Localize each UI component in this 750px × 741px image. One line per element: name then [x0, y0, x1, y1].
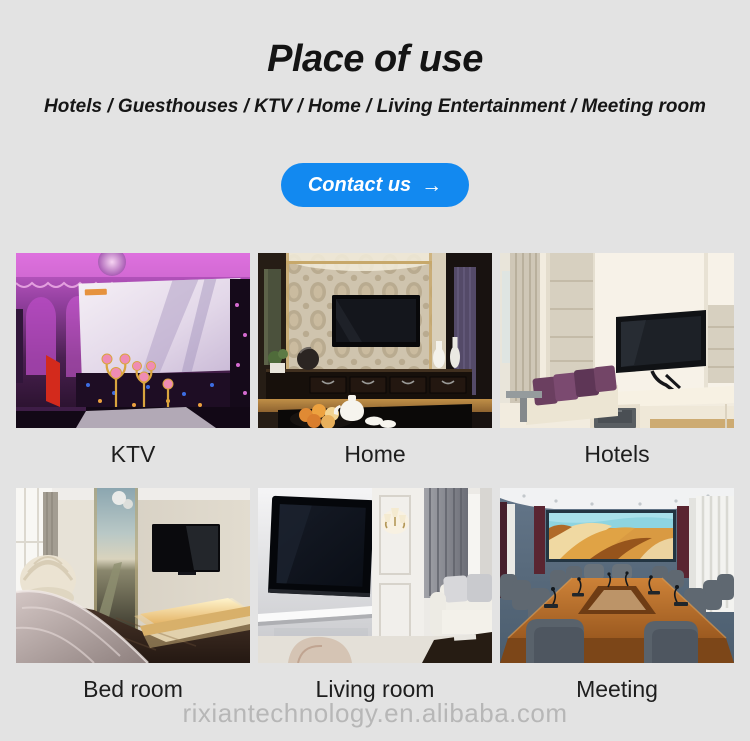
gallery-item-hotels: Hotels	[500, 253, 734, 488]
contact-button-row: Contact us →	[0, 163, 750, 207]
living-room-photo	[258, 488, 492, 663]
gallery-label-hotels: Hotels	[500, 441, 734, 467]
arrow-right-icon: →	[421, 175, 442, 196]
gallery-item-bedroom: Bed room	[16, 488, 250, 723]
gallery-item-home: Home	[258, 253, 492, 488]
gallery-item-ktv: KTV	[16, 253, 250, 488]
gallery-grid: KTV	[0, 253, 750, 723]
page-subtitle: Hotels / Guesthouses / KTV / Home / Livi…	[0, 94, 750, 119]
home-photo	[258, 253, 492, 428]
place-of-use-section: Place of use Hotels / Guesthouses / KTV …	[0, 0, 750, 741]
bedroom-photo	[16, 488, 250, 663]
gallery-label-home: Home	[258, 441, 492, 467]
hotels-photo	[500, 253, 734, 428]
gallery-label-ktv: KTV	[16, 441, 250, 467]
ktv-photo	[16, 253, 250, 428]
gallery-item-living-room: Living room	[258, 488, 492, 723]
contact-us-button[interactable]: Contact us →	[281, 163, 469, 207]
gallery-item-meeting: Meeting	[500, 488, 734, 723]
meeting-room-photo	[500, 488, 734, 663]
watermark-text: rixiantechnology.en.alibaba.com	[0, 698, 750, 728]
contact-us-label: Contact us	[308, 174, 411, 197]
page-title: Place of use	[0, 0, 750, 82]
